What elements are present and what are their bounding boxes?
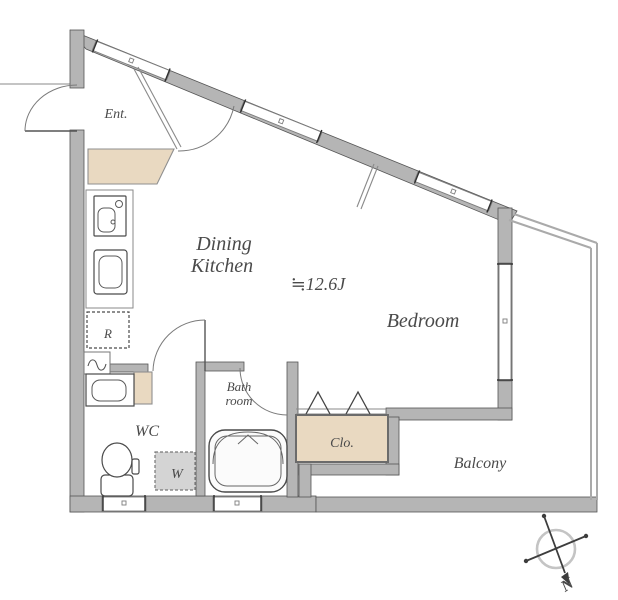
window-bedroom-east [497, 263, 513, 381]
window-sloped-1 [92, 39, 171, 82]
balcony-bottom-rail [316, 497, 597, 512]
entrance-door-arc [178, 106, 234, 151]
washroom-step [134, 372, 152, 404]
wall-step-horizontal [299, 464, 399, 475]
kitchen-sink [94, 196, 126, 236]
closet-folding-doors [306, 392, 370, 414]
label-wc: WC [135, 423, 159, 440]
compass-crossbar [526, 536, 586, 561]
label-closet: Clo. [330, 436, 354, 451]
label-bedroom: Bedroom [387, 310, 460, 332]
entrance-genkan-floor [88, 149, 174, 184]
washbasin [86, 374, 134, 406]
label-kitchen: Kitchen [190, 255, 253, 277]
window-wc-south [102, 495, 146, 511]
window-sloped-2 [240, 99, 323, 143]
label-refrigerator: R [103, 326, 112, 341]
label-entrance: Ent. [104, 107, 128, 122]
bedroom-partition-stub-1 [357, 164, 374, 207]
window-bath-south [213, 495, 262, 511]
wall-left-lower [70, 130, 84, 512]
label-bath-line2: room [226, 393, 253, 408]
bedroom-partition-stub-2 [361, 166, 378, 209]
wall-bath-top [203, 362, 244, 371]
kitchen [86, 190, 133, 348]
compass [524, 514, 588, 585]
label-dining: Dining [195, 233, 252, 255]
label-floor-area: ≒12.6J [291, 274, 347, 294]
pipe-space-box [84, 352, 110, 374]
label-bath-line1: Bath [227, 379, 252, 394]
bathtub [209, 430, 287, 492]
window-sloped-3 [414, 170, 493, 213]
wall-step-lower [299, 464, 311, 497]
floor-plan: Ent. Dining Kitchen ≒12.6J Bedroom WC Ba… [0, 0, 618, 600]
kitchen-stove [94, 250, 127, 294]
front-door-arc [25, 85, 77, 131]
wall-bath-left [196, 362, 205, 496]
wall-left-upper [70, 30, 84, 88]
floor-plan-drawing: Ent. Dining Kitchen ≒12.6J Bedroom WC Ba… [0, 0, 618, 600]
balcony-railing [509, 214, 597, 500]
toilet [101, 443, 139, 496]
label-north: N [557, 574, 578, 596]
label-balcony: Balcony [454, 455, 507, 472]
wall-bedroom-south [386, 408, 512, 420]
label-washing-machine: W [171, 467, 184, 482]
